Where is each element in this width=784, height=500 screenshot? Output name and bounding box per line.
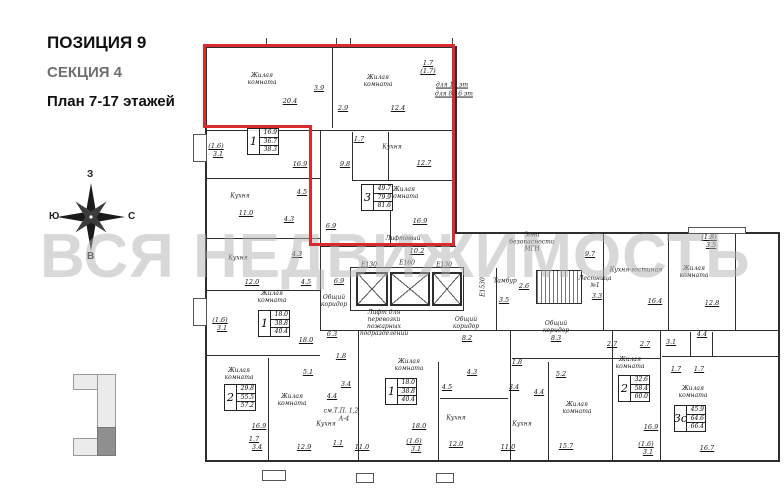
dimension-number: 1.7 [671,365,681,373]
dimension-number: 2.7 [640,340,650,348]
dimension-number: 12.9 [297,443,311,451]
dimension-number: 11.0 [355,443,369,451]
usable-area: 79.9 [374,193,392,202]
highlight-outline-segment [203,44,455,47]
dimension-number: 3.3 [592,292,602,300]
room-count: 2 [225,385,237,410]
apartment-info-box: 118.038.840.4 [385,378,417,405]
dimension-number: 11.0 [239,209,253,217]
apartment-areas: 18.038.840.4 [398,379,416,404]
room-label: Жилая комната [616,357,645,371]
balcony [193,134,207,162]
room-count: 3с [675,406,687,431]
apartment-info-box: 116.936.738.3 [247,128,279,155]
total-area: 81.6 [374,201,392,210]
room-count: 1 [386,379,398,404]
highlight-outline-segment [203,44,206,128]
wall-segment [268,358,269,460]
room-label: Общий коридор [453,317,479,331]
dimension-number: 12.7 [417,159,431,167]
room-label: Общий коридор [543,321,569,335]
dimension-number: (1.6) [638,440,653,448]
highlight-outline-segment [452,44,455,246]
dimension-number: 3.4 [252,443,262,451]
total-area: 60.0 [631,392,649,401]
usable-area: 55.5 [237,393,255,402]
wall-segment [440,398,508,399]
room-label: А-4 [339,417,349,424]
compass-label-top: З [87,169,93,180]
dimension-number: 4.4 [327,392,337,400]
wall-segment [352,180,455,181]
dimension-number: 3.4 [509,383,519,391]
apartment-areas: 16.936.738.3 [260,129,278,154]
dimension-number: 12.0 [449,440,463,448]
wall-segment [660,330,661,460]
balcony [436,473,454,483]
dimension-number: 4.5 [442,383,452,391]
apartment-info-box: 232.658.460.0 [618,375,650,402]
section-title: СЕКЦИЯ 4 [47,64,122,81]
total-area: 38.3 [260,145,278,154]
usable-area: 64.6 [687,414,705,423]
room-label: Жилая комната [258,291,287,305]
apartment-info-box: 3с45.964.666.4 [674,405,706,432]
room-label: Кухня [230,194,249,201]
room-label: Жилая комната [225,368,254,382]
apartment-areas: 45.964.666.4 [687,406,705,431]
position-title: ПОЗИЦИЯ 9 [47,33,146,53]
living-area: 16.9 [260,129,278,137]
dimension-number: 16.9 [644,423,658,431]
wall-segment [388,132,389,180]
wall-segment [438,362,439,460]
balcony [193,298,207,326]
dimension-number: 3.1 [217,324,227,332]
room-label: Жилая комната [679,386,708,400]
key-plan [73,371,121,461]
wall-segment [207,178,320,179]
living-area: 32.6 [631,376,649,384]
total-area: 40.4 [398,395,416,404]
dimension-number: 1.7 [694,365,704,373]
dimension-number: 2.7 [607,340,617,348]
apartment-areas: 32.658.460.0 [631,376,649,401]
dimension-number: 1.7 [354,135,364,143]
wall-segment [778,232,780,462]
dimension-number: 16.9 [293,160,307,168]
dimension-number: 5.2 [556,370,566,378]
dimension-number: 1.1 [333,439,343,447]
room-label: Кухня [316,422,335,429]
dimension-number: 15.7 [559,442,573,450]
dimension-number: 12.8 [705,299,719,307]
dimension-number: 1.8 [512,358,522,366]
dimension-number: 1.7 [249,435,259,443]
wall-segment [205,460,780,462]
room-label: Жилая комната [278,394,307,408]
dimension-number: 18.0 [299,336,313,344]
room-label: Жилая комната [563,402,592,416]
dimension-number: (1.6) [406,437,421,445]
dimension-number: 2.9 [338,104,348,112]
total-area: 57.2 [237,401,255,410]
dimension-number: 18.0 [412,422,426,430]
room-label: см.Т.П. 1,2 [324,409,359,416]
wall-segment [207,355,320,356]
wall-segment [690,332,691,356]
usable-area: 58.4 [631,384,649,393]
balcony [356,473,374,483]
wall-segment [612,330,613,460]
dimension-number: 16.4 [648,297,662,305]
dimension-number: 3.1 [643,448,653,456]
living-area: 18.0 [271,311,289,319]
dimension-number: 1.8 [336,352,346,360]
room-label: Кухня [512,422,531,429]
apartment-areas: 18.038.840.4 [271,311,289,336]
wall-segment [712,332,713,356]
dimension-number: 20.4 [283,97,297,105]
room-label: Жилая комната [395,359,424,373]
usable-area: 38.8 [271,319,289,328]
room-label: Кухня [446,416,465,423]
dimension-number: 4.4 [697,330,707,338]
living-area: 49.7 [374,185,392,193]
apartment-info-box: 229.855.557.2 [224,384,256,411]
plan-title: План 7-17 этажей [47,93,175,110]
room-label: Общий коридор [321,295,347,309]
living-area: 45.9 [687,406,705,414]
dimension-number: 3.1 [666,338,676,346]
dimension-number: 3.5 [499,296,509,304]
key-plan-highlighted-section [97,427,116,456]
dimension-number: 4.4 [534,388,544,396]
room-label: Жилая комната [390,187,419,201]
wall-segment [510,330,511,460]
dimension-number: 4.3 [467,368,477,376]
apartment-areas: 49.779.981.6 [374,185,392,210]
dimension-number: 16.7 [700,444,714,452]
dimension-number: (1.6) [208,142,223,150]
room-count: 2 [619,376,631,401]
dimension-number: 5.1 [303,368,313,376]
dimension-number: 3.1 [411,445,421,453]
highlight-outline-segment [309,243,455,246]
dimension-number: (1.7) [420,67,435,75]
dimension-number: 4.5 [297,188,307,196]
room-label: Жилая комната [364,75,393,89]
room-label: Лифт для перевозки пожарных подразделени… [360,310,408,338]
wall-segment [207,130,456,131]
usable-area: 38.8 [398,387,416,396]
dimension-number: (1.6) [212,316,227,324]
wall-segment [662,356,778,357]
wall-segment [358,330,359,460]
dimension-number: 8.3 [551,334,561,342]
room-count: 1 [259,311,271,336]
room-label: Кухня [382,145,401,152]
total-area: 40.4 [271,327,289,336]
page: { "header": { "position": "ПОЗИЦИЯ 9", "… [0,0,784,500]
dimension-number: 8.2 [462,334,472,342]
dimension-number: 3.4 [341,380,351,388]
dimension-number: 11.0 [501,443,515,451]
dimension-number: 12.4 [391,104,405,112]
wall-segment [332,48,333,128]
apartment-info-box: 349.779.981.6 [361,184,393,211]
dimension-number: 9.8 [340,160,350,168]
wall-segment [548,362,549,460]
balcony [262,470,286,481]
dimension-number: 3.9 [314,84,324,92]
watermark: ВСЯ НЕДВИЖИМОСТЬ [40,221,751,292]
apartment-info-box: 118.038.840.4 [258,310,290,337]
living-area: 18.0 [398,379,416,387]
dimension-number: 3.1 [213,150,223,158]
wall-segment [455,46,457,234]
highlight-outline-segment [309,125,312,246]
highlight-outline-segment [203,125,312,128]
room-count: 3 [362,185,374,210]
dimension-number: 1.7 [423,59,433,67]
total-area: 66.4 [687,422,705,431]
usable-area: 36.7 [260,137,278,146]
apartment-areas: 29.855.557.2 [237,385,255,410]
room-label: Жилая комната [248,73,277,87]
living-area: 29.8 [237,385,255,393]
dimension-number: 6.3 [327,330,337,338]
dimension-number: 16.9 [252,422,266,430]
room-count: 1 [248,129,260,154]
